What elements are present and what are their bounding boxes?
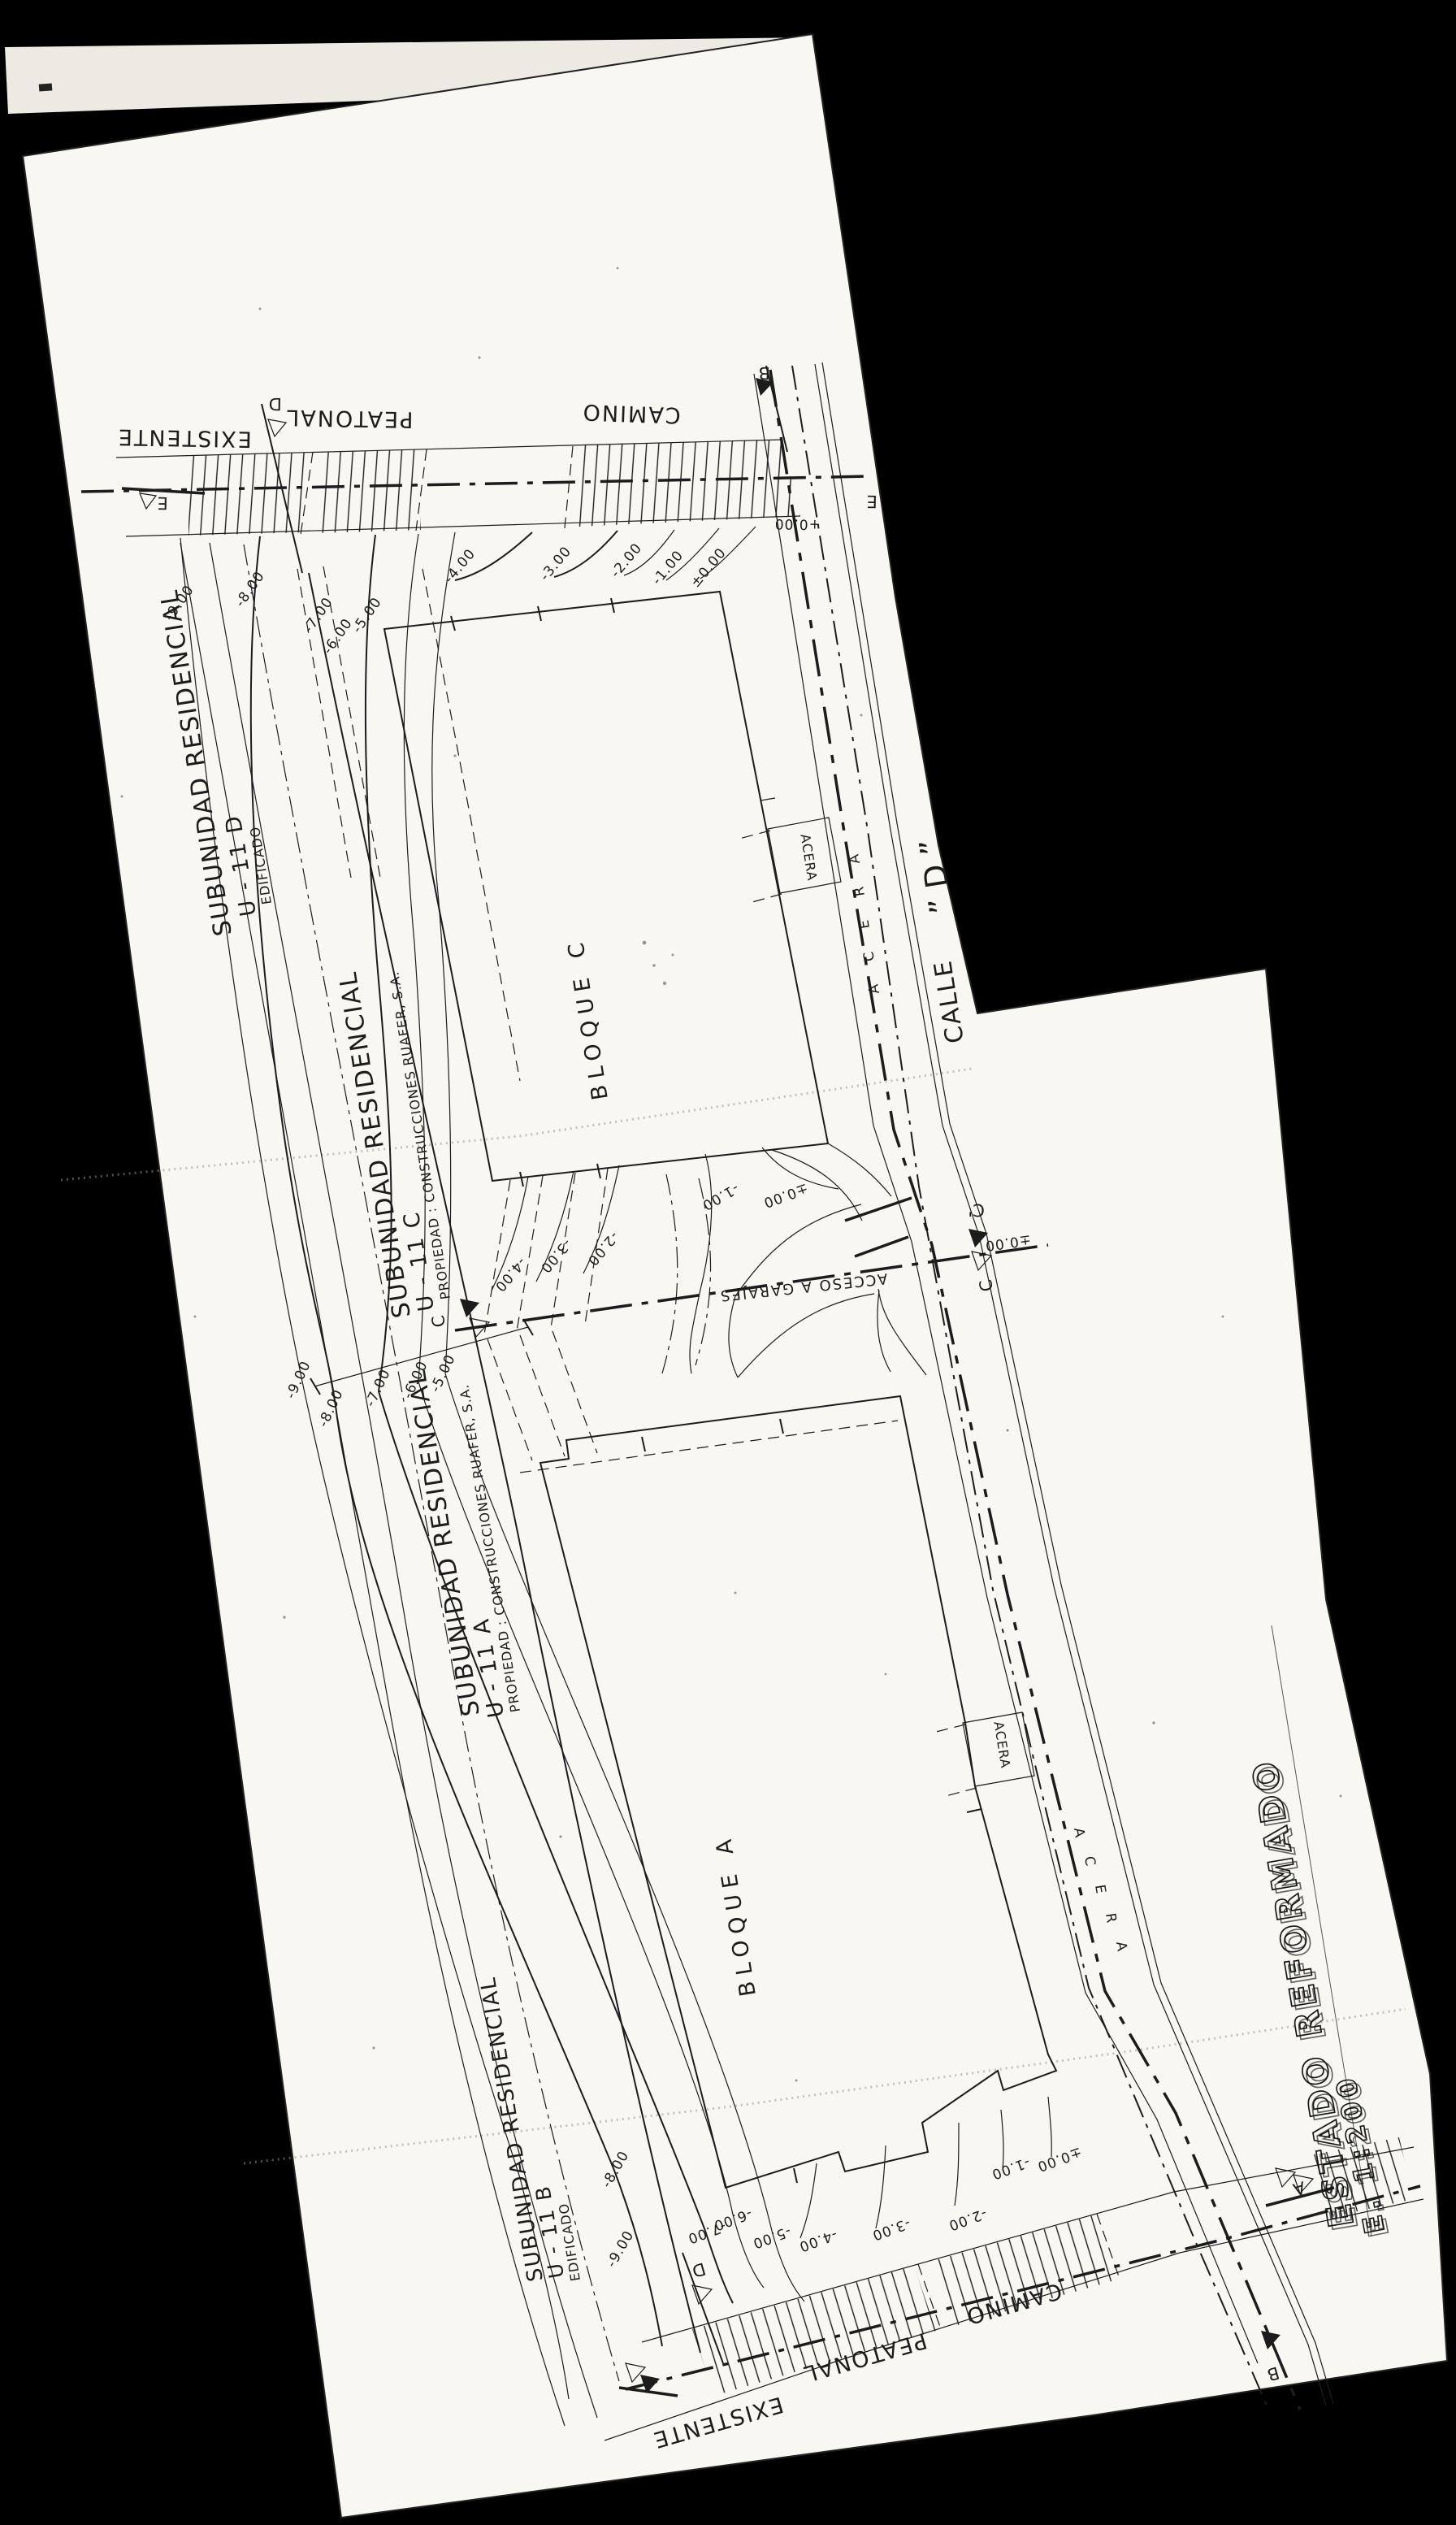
scan-mark bbox=[39, 83, 53, 91]
section-marker-d: D bbox=[268, 394, 282, 414]
road-label-camino-top: CAMINO bbox=[581, 399, 681, 427]
crosswalk-hatch bbox=[188, 453, 307, 536]
level-street-top: +0.00 bbox=[774, 515, 821, 532]
section-marker-c-prime: C' bbox=[968, 1200, 985, 1220]
crosswalk-hatch bbox=[578, 440, 800, 527]
road-label-peatonal-top: PEATONAL bbox=[285, 405, 414, 432]
crosswalk-hatch bbox=[317, 449, 421, 533]
site-plan-scan: E D B E +0.00 EXISTENTE PEATONAL CAMINO bbox=[0, 0, 1456, 2525]
section-marker-e: E bbox=[157, 493, 168, 513]
street-marker-e: E bbox=[866, 492, 877, 511]
road-label-existente-top: EXISTENTE bbox=[117, 424, 252, 452]
